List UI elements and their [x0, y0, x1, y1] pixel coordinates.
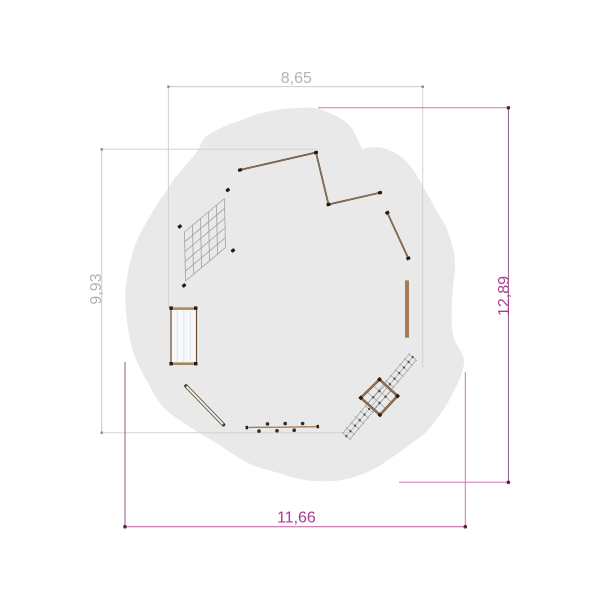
- svg-text:11,66: 11,66: [277, 510, 316, 527]
- svg-text:12,89: 12,89: [496, 276, 513, 316]
- svg-text:9,93: 9,93: [88, 273, 105, 304]
- svg-text:8,65: 8,65: [281, 70, 312, 87]
